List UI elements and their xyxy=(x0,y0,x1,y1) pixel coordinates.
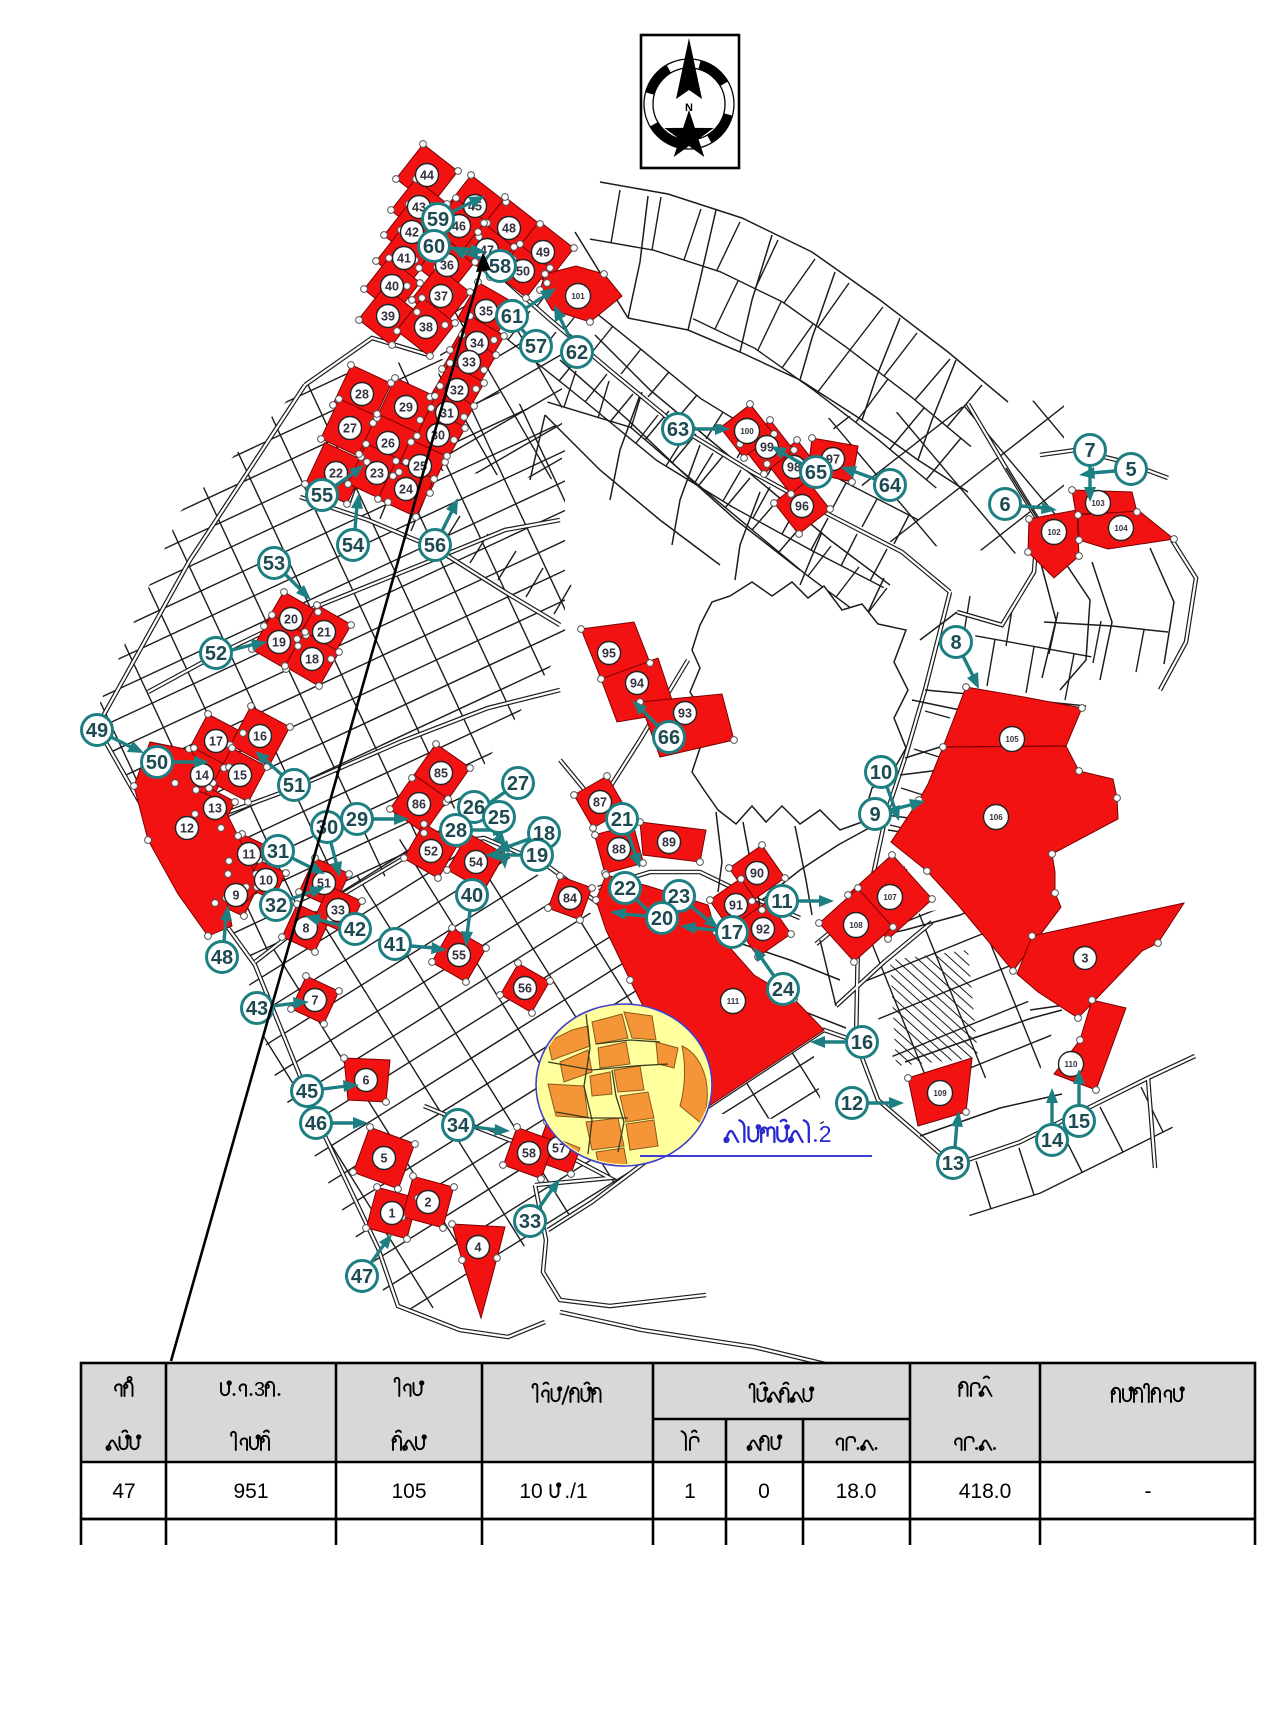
svg-text:27: 27 xyxy=(343,422,357,436)
svg-text:49: 49 xyxy=(86,720,108,742)
svg-text:105: 105 xyxy=(391,1480,426,1503)
svg-text:13: 13 xyxy=(208,802,222,816)
svg-text:56: 56 xyxy=(424,535,446,557)
svg-text:11: 11 xyxy=(771,891,792,913)
svg-text:10: 10 xyxy=(519,1480,542,1503)
svg-text:19: 19 xyxy=(272,636,286,650)
svg-text:58: 58 xyxy=(522,1147,536,1161)
svg-text:0: 0 xyxy=(758,1480,770,1503)
svg-text:96: 96 xyxy=(795,500,809,514)
svg-text:42: 42 xyxy=(344,919,366,941)
svg-text:24: 24 xyxy=(399,483,413,497)
svg-text:38: 38 xyxy=(419,321,433,335)
svg-text:50: 50 xyxy=(516,265,530,279)
svg-text:33: 33 xyxy=(331,904,345,918)
svg-text:41: 41 xyxy=(397,252,411,266)
svg-text:52: 52 xyxy=(205,643,227,665)
svg-text:6: 6 xyxy=(363,1074,370,1088)
svg-text:7: 7 xyxy=(1084,440,1095,462)
svg-text:8: 8 xyxy=(950,632,961,654)
svg-text:31: 31 xyxy=(267,841,289,863)
svg-text:109: 109 xyxy=(933,1089,947,1098)
svg-text:87: 87 xyxy=(593,796,607,810)
svg-text:19: 19 xyxy=(526,845,548,867)
svg-text:10: 10 xyxy=(870,762,892,784)
svg-text:1: 1 xyxy=(684,1480,696,1503)
svg-text:105: 105 xyxy=(1005,735,1019,744)
svg-text:5: 5 xyxy=(381,1152,388,1166)
svg-text:18.0: 18.0 xyxy=(836,1480,877,1503)
svg-text:26: 26 xyxy=(463,797,485,819)
svg-text:111: 111 xyxy=(727,997,740,1006)
svg-text:32: 32 xyxy=(265,895,287,917)
svg-text:20: 20 xyxy=(651,908,673,930)
svg-text:26: 26 xyxy=(381,437,395,451)
svg-text:32: 32 xyxy=(450,384,464,398)
svg-text:84: 84 xyxy=(563,892,577,906)
svg-text:107: 107 xyxy=(883,893,897,902)
svg-text:54: 54 xyxy=(469,856,483,870)
svg-text:14: 14 xyxy=(195,769,209,783)
svg-text:65: 65 xyxy=(805,462,827,484)
svg-text:91: 91 xyxy=(729,899,743,913)
svg-text:4: 4 xyxy=(475,1241,482,1255)
svg-text:57: 57 xyxy=(525,336,547,358)
svg-text:40: 40 xyxy=(385,280,399,294)
svg-text:43: 43 xyxy=(246,998,268,1020)
svg-text:55: 55 xyxy=(452,949,466,963)
svg-text:9: 9 xyxy=(869,804,880,826)
svg-text:95: 95 xyxy=(602,647,616,661)
svg-text:88: 88 xyxy=(612,843,626,857)
svg-text:25: 25 xyxy=(488,807,510,829)
svg-text:23: 23 xyxy=(668,886,690,908)
svg-text:86: 86 xyxy=(412,798,426,812)
svg-text:45: 45 xyxy=(296,1081,318,1103)
svg-text:90: 90 xyxy=(750,867,764,881)
svg-text:3: 3 xyxy=(254,1379,265,1401)
svg-text:18: 18 xyxy=(305,653,319,667)
svg-text:13: 13 xyxy=(942,1153,964,1175)
svg-text:51: 51 xyxy=(283,775,305,797)
svg-text:41: 41 xyxy=(384,934,406,956)
svg-text:27: 27 xyxy=(507,773,529,795)
svg-text:8: 8 xyxy=(303,922,310,936)
svg-text:66: 66 xyxy=(658,727,680,749)
svg-text:28: 28 xyxy=(355,388,369,402)
svg-text:17: 17 xyxy=(209,735,223,749)
svg-text:92: 92 xyxy=(756,923,770,937)
svg-text:44: 44 xyxy=(420,169,434,183)
svg-text:52: 52 xyxy=(424,845,438,859)
svg-text:37: 37 xyxy=(434,290,448,304)
svg-text:40: 40 xyxy=(461,885,483,907)
svg-text:106: 106 xyxy=(989,813,1003,822)
svg-text:2: 2 xyxy=(425,1196,432,1210)
svg-text:24: 24 xyxy=(772,979,795,1001)
svg-text:-: - xyxy=(1145,1480,1152,1503)
svg-text:33: 33 xyxy=(519,1211,541,1233)
svg-text:104: 104 xyxy=(1114,524,1128,533)
svg-text:28: 28 xyxy=(445,820,467,842)
svg-text:3: 3 xyxy=(1082,952,1089,966)
svg-text:94: 94 xyxy=(630,677,644,691)
svg-text:29: 29 xyxy=(346,809,368,831)
svg-text:46: 46 xyxy=(305,1113,327,1135)
svg-text:22: 22 xyxy=(329,467,343,481)
svg-text:10: 10 xyxy=(259,874,273,888)
svg-text:62: 62 xyxy=(566,342,588,364)
svg-text:42: 42 xyxy=(405,226,419,240)
svg-text:16: 16 xyxy=(253,730,267,744)
svg-text:53: 53 xyxy=(263,553,285,575)
svg-text:47: 47 xyxy=(351,1266,373,1288)
svg-text:5: 5 xyxy=(1125,459,1136,481)
svg-text:1: 1 xyxy=(389,1207,396,1221)
svg-text:35: 35 xyxy=(479,305,493,319)
svg-text:34: 34 xyxy=(470,337,484,351)
svg-text:./1: ./1 xyxy=(564,1480,587,1503)
svg-text:33: 33 xyxy=(462,356,476,370)
svg-text:58: 58 xyxy=(489,256,511,278)
svg-text:63: 63 xyxy=(667,419,689,441)
svg-text:49: 49 xyxy=(536,246,550,260)
svg-text:56: 56 xyxy=(518,982,532,996)
svg-text:11: 11 xyxy=(242,848,255,862)
svg-text:99: 99 xyxy=(760,441,774,455)
svg-text:48: 48 xyxy=(211,947,233,969)
svg-text:N: N xyxy=(685,102,693,114)
svg-text:60: 60 xyxy=(423,236,445,258)
svg-text:16: 16 xyxy=(851,1032,873,1054)
svg-text:17: 17 xyxy=(721,922,743,944)
svg-text:103: 103 xyxy=(1091,499,1105,508)
svg-text:55: 55 xyxy=(311,485,333,507)
svg-text:102: 102 xyxy=(1047,528,1061,537)
svg-text:34: 34 xyxy=(447,1115,470,1137)
svg-text:29: 29 xyxy=(399,401,413,415)
svg-text:61: 61 xyxy=(501,306,523,328)
svg-text:100: 100 xyxy=(740,427,754,436)
svg-text:59: 59 xyxy=(427,209,449,231)
svg-text:15: 15 xyxy=(1068,1111,1090,1133)
svg-text:85: 85 xyxy=(434,767,448,781)
svg-text:6: 6 xyxy=(999,494,1010,516)
svg-text:2: 2 xyxy=(819,1121,832,1147)
svg-text:64: 64 xyxy=(879,475,902,497)
svg-text:12: 12 xyxy=(180,822,194,836)
svg-text:418.0: 418.0 xyxy=(959,1480,1012,1503)
svg-text:101: 101 xyxy=(571,292,585,301)
svg-text:89: 89 xyxy=(662,836,676,850)
svg-text:20: 20 xyxy=(284,613,298,627)
svg-text:23: 23 xyxy=(370,467,384,481)
svg-text:22: 22 xyxy=(614,878,636,900)
svg-text:48: 48 xyxy=(502,222,516,236)
svg-text:110: 110 xyxy=(1065,1060,1078,1069)
svg-text:54: 54 xyxy=(342,535,365,557)
svg-text:21: 21 xyxy=(611,809,633,831)
svg-text:47: 47 xyxy=(112,1480,135,1503)
svg-text:7: 7 xyxy=(312,994,319,1008)
svg-text:14: 14 xyxy=(1041,1130,1064,1152)
svg-text:39: 39 xyxy=(381,310,395,324)
svg-text:93: 93 xyxy=(678,707,692,721)
svg-text:108: 108 xyxy=(849,921,863,930)
svg-text:50: 50 xyxy=(146,752,168,774)
svg-text:18: 18 xyxy=(533,823,555,845)
svg-text:21: 21 xyxy=(317,626,331,640)
svg-text:15: 15 xyxy=(233,769,247,783)
svg-text:951: 951 xyxy=(233,1480,268,1503)
svg-text:9: 9 xyxy=(233,889,240,903)
svg-text:12: 12 xyxy=(841,1093,863,1115)
